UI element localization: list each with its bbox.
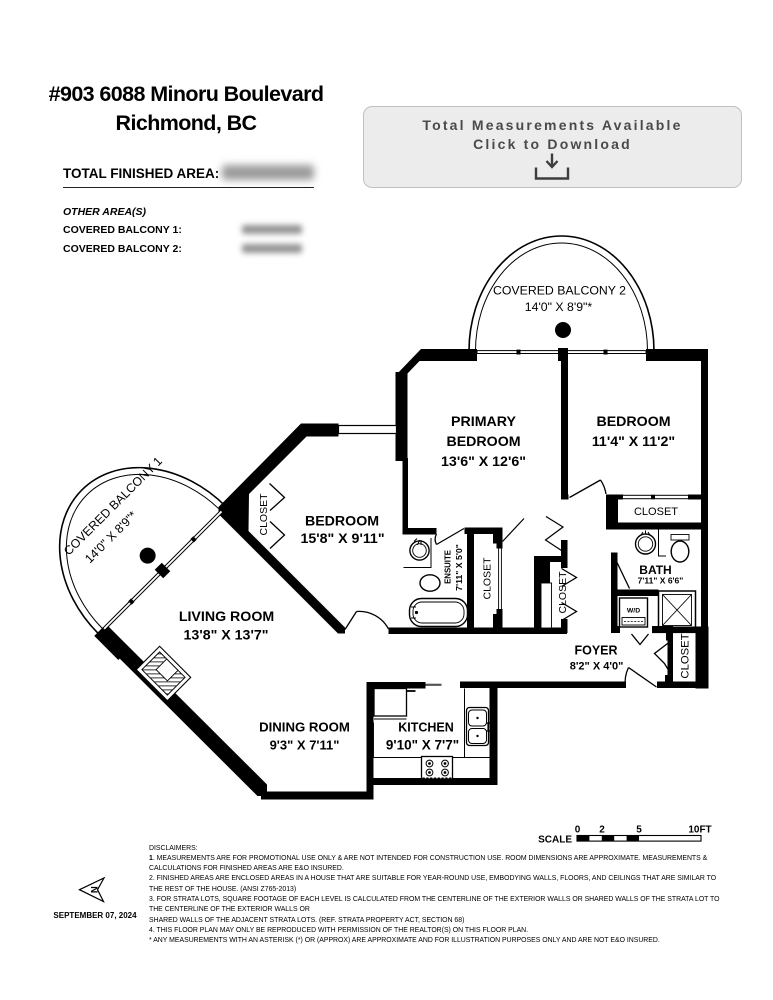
svg-text:13'6" X 12'6": 13'6" X 12'6" [441,454,526,470]
svg-text:0: 0 [575,825,581,836]
svg-text:CLOSET: CLOSET [258,493,270,536]
svg-text:11'4" X 11'2": 11'4" X 11'2" [592,434,675,450]
svg-text:15'8" X 9'11": 15'8" X 9'11" [300,531,384,547]
svg-text:9'10" X 7'7": 9'10" X 7'7" [386,738,459,753]
svg-text:PRIMARY: PRIMARY [451,414,516,430]
svg-text:COVERED BALCONY 2: COVERED BALCONY 2 [493,284,626,298]
svg-text:13'8" X 13'7": 13'8" X 13'7" [184,628,269,644]
svg-text:FOYER: FOYER [574,644,617,658]
svg-text:8'2" X 4'0": 8'2" X 4'0" [570,661,624,673]
svg-text:LIVING ROOM: LIVING ROOM [179,609,274,625]
svg-text:CLOSET: CLOSET [634,506,678,518]
svg-text:7'11" X 5'0": 7'11" X 5'0" [454,544,464,591]
svg-text:ENSUITE: ENSUITE [444,550,453,584]
svg-text:N: N [90,886,101,893]
svg-text:5: 5 [636,825,642,836]
svg-text:14'0" X 8'9"*: 14'0" X 8'9"* [525,300,593,314]
svg-text:9'3" X 7'11": 9'3" X 7'11" [270,738,340,753]
svg-text:2: 2 [599,825,605,836]
svg-text:10FT: 10FT [688,825,711,836]
svg-text:BEDROOM: BEDROOM [305,514,379,530]
svg-text:CLOSET: CLOSET [680,633,692,678]
svg-text:W/D: W/D [627,608,640,615]
svg-text:DINING ROOM: DINING ROOM [259,720,350,735]
svg-text:KITCHEN: KITCHEN [398,721,454,735]
svg-text:CLOSET: CLOSET [557,571,569,614]
svg-text:BEDROOM: BEDROOM [446,434,520,450]
svg-text:7'11" X 6'6": 7'11" X 6'6" [638,576,684,586]
svg-text:BEDROOM: BEDROOM [596,414,670,430]
svg-text:CLOSET: CLOSET [482,557,494,600]
